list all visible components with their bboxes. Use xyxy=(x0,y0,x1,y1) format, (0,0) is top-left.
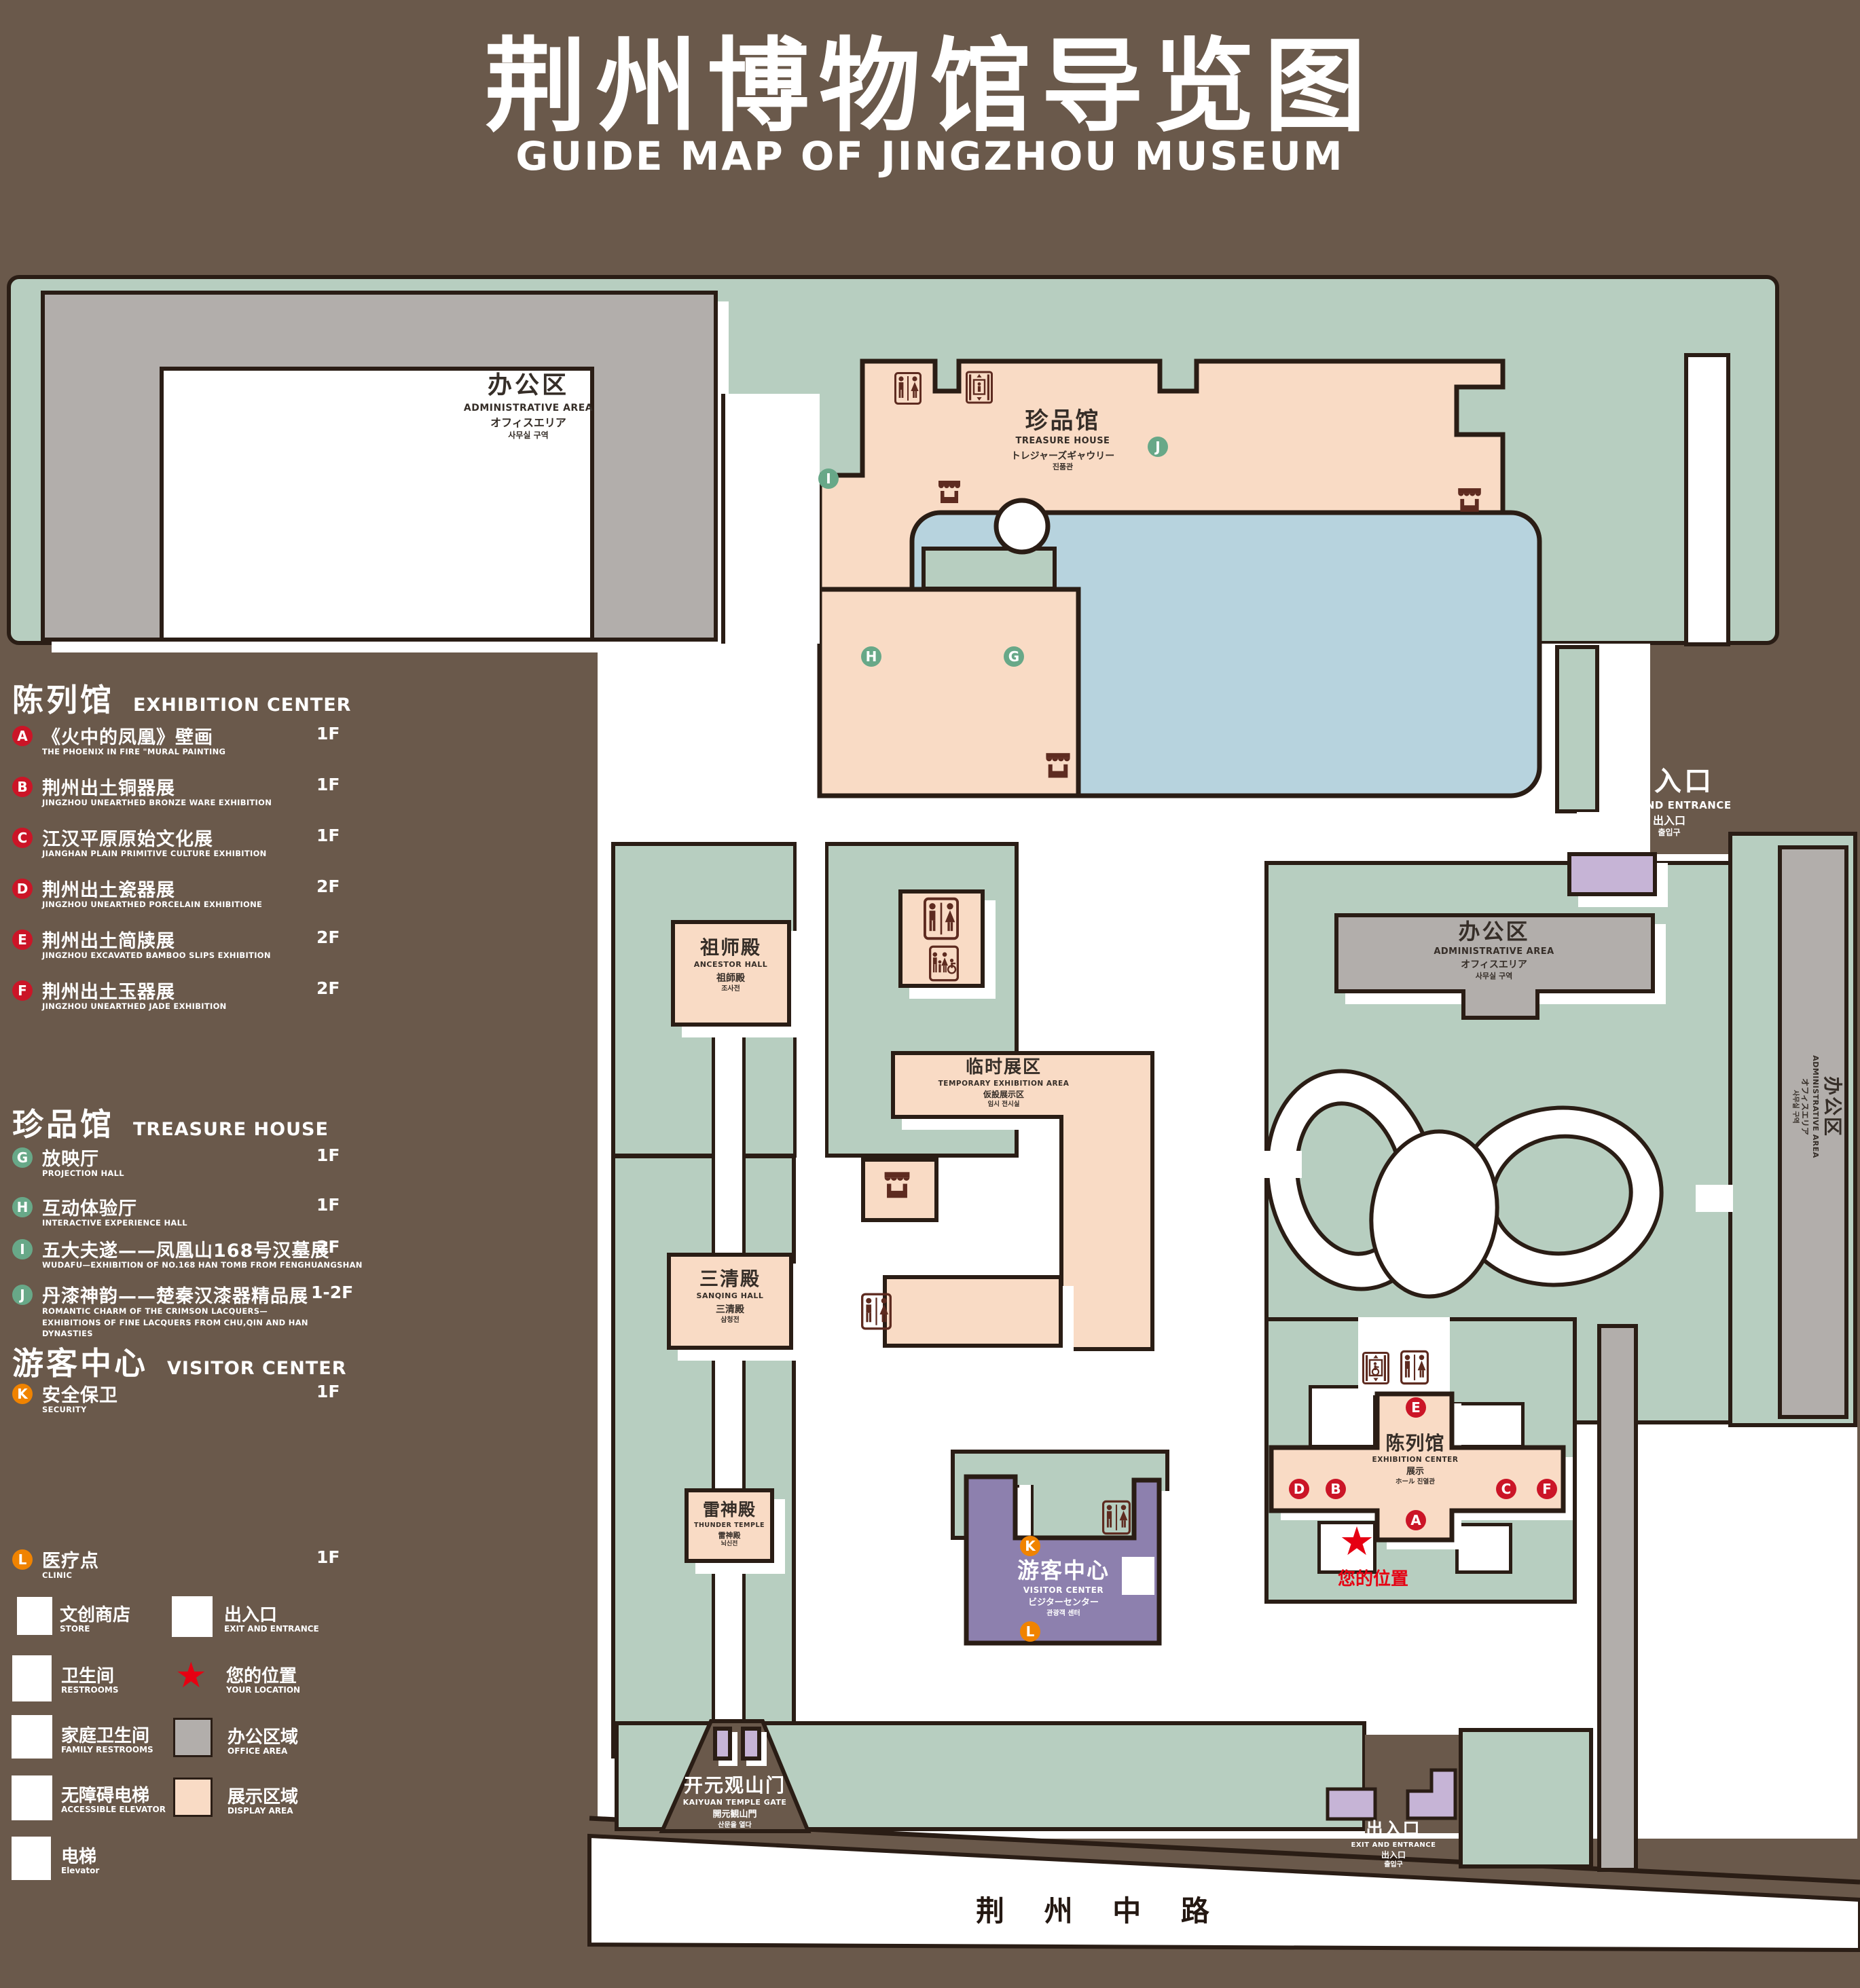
treasure-house-label: 珍品馆 TREASURE HOUSE トレジャーズギャウリー 진품관 xyxy=(907,406,1219,473)
courtyard-mid-top xyxy=(721,394,820,644)
legend-item: J 丹漆神韵——楚秦汉漆器精品展 ROMANTIC CHARM OF THE C… xyxy=(12,1281,365,1336)
store-icon xyxy=(1455,484,1484,518)
store-icon xyxy=(881,1166,913,1206)
legend-item: F 荆州出土玉器展 JINGZHOU UNEARTHED JADE EXHIBI… xyxy=(12,977,365,1031)
accessible-elevator-icon xyxy=(1362,1348,1389,1388)
legend-item: G 放映厅 PROJECTION HALL 1F xyxy=(12,1144,365,1198)
restroom-icon xyxy=(894,369,922,408)
kaiyuan-gate-label: 开元观山门 KAIYUAN TEMPLE GATE 開元観山門 산문을 열다 xyxy=(579,1773,891,1830)
map-marker-l: L xyxy=(1020,1621,1040,1642)
exit-icon xyxy=(172,1596,213,1637)
your-location-label: 您的位置 xyxy=(1285,1568,1461,1591)
admin-strip-label: 办公区 ADMINISTRATIVE AREA オフィスエリア 사무실 구역 xyxy=(1791,998,1844,1215)
legend-item: K 安全保卫 SECURITY 1F xyxy=(12,1380,365,1435)
legend-item: C 江汉平原原始文化展 JIANGHAN PLAIN PRIMITIVE CUL… xyxy=(12,824,365,879)
display-area-swatch xyxy=(173,1778,213,1817)
legend-marker-c: C xyxy=(12,828,33,848)
legend-marker-f: F xyxy=(12,980,33,1001)
restroom-icon xyxy=(924,896,959,941)
accessible-elevator-icon xyxy=(12,1775,52,1820)
store-icon xyxy=(936,475,963,511)
legend-marker-a: A xyxy=(12,726,33,746)
legend-marker-l: L xyxy=(12,1549,33,1570)
legend-marker-j: J xyxy=(12,1285,33,1305)
family-restroom-icon xyxy=(12,1715,52,1759)
legend-section-visitor-title: 游客中心VISITOR CENTER xyxy=(12,1339,347,1384)
legend-marker-b: B xyxy=(12,777,33,797)
thunder-temple-label: 雷神殿 THUNDER TEMPLE 雷神殿 뇌신전 xyxy=(573,1499,886,1549)
map-marker-g: G xyxy=(1004,646,1024,667)
guide-map-poster: 荆州博物馆导览图 GUIDE MAP OF JINGZHOU MUSEUM xyxy=(0,0,1860,1988)
legend-marker-d: D xyxy=(12,879,33,899)
admin-top-label: 办公区 ADMINISTRATIVE AREA オフィスエリア 사무실 구역 xyxy=(372,370,685,441)
legend-section-treasure-title: 珍品馆TREASURE HOUSE xyxy=(12,1100,329,1145)
location-star-icon: ★ xyxy=(1339,1518,1374,1564)
legend-marker-k: K xyxy=(12,1384,33,1404)
store-icon xyxy=(1043,748,1073,785)
legend-item: B 荆州出土铜器展 JINGZHOU UNEARTHED BRONZE WARE… xyxy=(12,773,365,828)
legend-item: L 医疗点 CLINIC 1F xyxy=(12,1546,365,1600)
exhibition-center-label: 陈列馆 EXHIBITION CENTER 展示 ホール 진열관 xyxy=(1259,1431,1571,1486)
elevator-icon xyxy=(12,1837,51,1880)
map-marker-e: E xyxy=(1406,1397,1426,1418)
restroom-icon xyxy=(1400,1347,1429,1388)
temporary-exhibition-east-wing xyxy=(1059,1115,1154,1351)
elevator-icon xyxy=(966,367,993,407)
map-marker-a: A xyxy=(1406,1510,1426,1530)
legend-marker-h: H xyxy=(12,1197,33,1217)
admin-strip-narrow xyxy=(1597,1324,1638,1872)
legend-item: D 荆州出土瓷器展 JINGZHOU UNEARTHED PORCELAIN E… xyxy=(12,875,365,929)
restroom-icon xyxy=(1102,1499,1131,1536)
store-icon xyxy=(17,1597,52,1635)
legend-section-exhibition-title: 陈列馆EXHIBITION CENTER xyxy=(12,676,351,720)
ancestor-hall-label: 祖师殿 ANCESTOR HALL 祖師殿 조사전 xyxy=(575,936,887,993)
visitor-center-label: 游客中心 VISITOR CENTER ビジターセンター 관광객 센터 xyxy=(907,1557,1220,1618)
location-star-icon: ★ xyxy=(175,1655,207,1696)
temporary-exhibition-label: 临时展区 TEMPORARY EXHIBITION AREA 仮設展示区 임시 … xyxy=(847,1056,1160,1109)
temporary-exhibition-west-wing xyxy=(883,1275,1063,1348)
legend-marker-e: E xyxy=(12,929,33,950)
legend-item: E 荆州出土简牍展 JINGZHOU EXCAVATED BAMBOO SLIP… xyxy=(12,926,365,980)
office-area-swatch xyxy=(173,1718,213,1757)
gate-pillar-right xyxy=(741,1727,761,1761)
road-label: 荆 州 中 路 xyxy=(944,1893,1256,1930)
exit-right-label: 出入口 EXIT AND ENTRANCE 出入口 출입구 xyxy=(1513,764,1825,839)
legend-item: A 《火中的凤凰》壁画 THE PHOENIX IN FIRE "MURAL P… xyxy=(12,722,365,777)
map-marker-i: I xyxy=(818,468,839,489)
gate-pillar-left xyxy=(713,1727,732,1761)
legend-marker-g: G xyxy=(12,1147,33,1168)
gate-building-right xyxy=(1567,852,1657,896)
legend-marker-i: I xyxy=(12,1239,33,1259)
family-restroom-icon xyxy=(929,945,959,982)
exit-bottom-label: 出入口 EXIT AND ENTRANCE 出入口 출입구 xyxy=(1237,1818,1550,1869)
restroom-icon xyxy=(12,1655,52,1701)
map-marker-k: K xyxy=(1020,1536,1040,1556)
sanqing-hall-label: 三清殿 SANQING HALL 三清殿 삼청전 xyxy=(574,1267,886,1325)
map-marker-h: H xyxy=(861,646,881,667)
admin-building-mid-step xyxy=(1461,989,1539,1020)
admin-mid-label: 办公区 ADMINISTRATIVE AREA オフィスエリア 사무실 구역 xyxy=(1338,918,1650,981)
